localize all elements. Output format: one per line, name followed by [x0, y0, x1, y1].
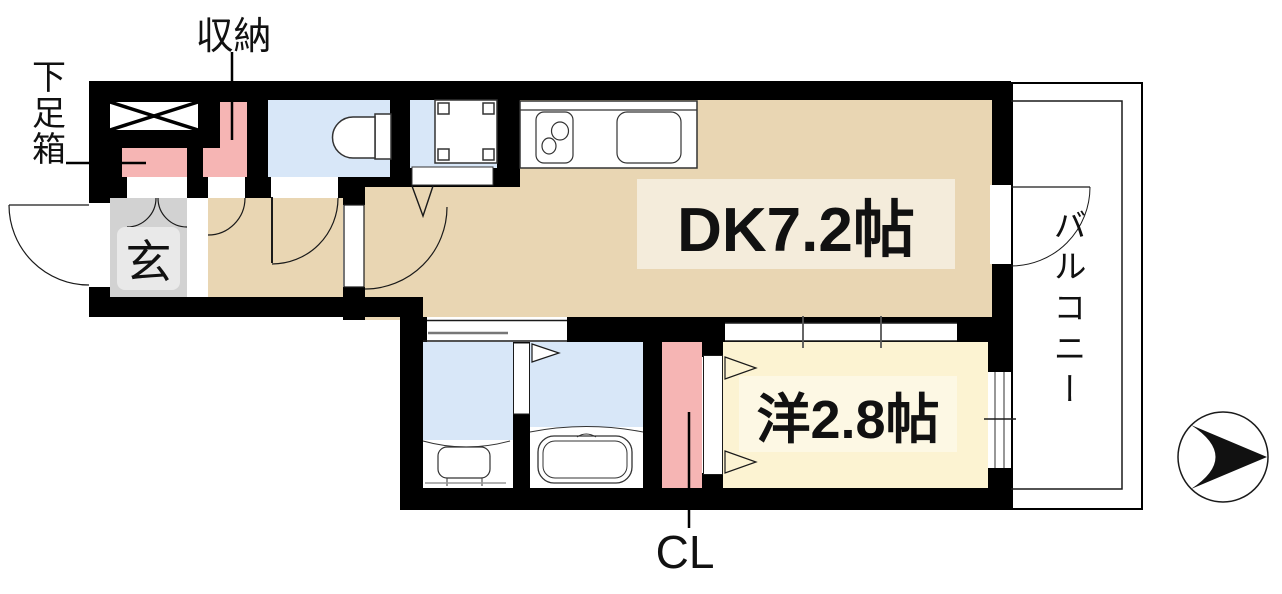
balcony-label: バルコニー [1046, 200, 1088, 420]
closet-label: CL [650, 528, 720, 576]
entrance-label: 玄 [117, 227, 180, 290]
doorway-opening [271, 177, 338, 198]
storage-label: 収納 [186, 10, 281, 54]
wall-segment [343, 287, 365, 320]
floor-plan: 収納 下足箱 玄 DK7.2帖 洋2.8帖 バルコニー CL [0, 0, 1282, 594]
wall-segment [643, 342, 662, 490]
wall-segment [89, 297, 423, 317]
north-arrow-icon [1178, 412, 1268, 502]
bathtub-area [530, 427, 643, 488]
dining-kitchen-label: DK7.2帖 [637, 179, 955, 269]
toilet-room-floor [268, 100, 390, 177]
laundry-area-floor [410, 100, 497, 168]
shoe-box-label: 下足箱 [24, 52, 68, 174]
wall-segment [702, 473, 723, 490]
doorway-opening [208, 177, 245, 198]
entrance-step [187, 198, 208, 295]
sliding-door-opening [427, 317, 567, 342]
window-opening [725, 323, 957, 341]
doorway-opening [127, 177, 187, 198]
wall-segment [400, 317, 423, 510]
closet-door [703, 355, 723, 475]
shoe-box [122, 148, 187, 177]
bathroom-floor [530, 342, 643, 427]
shoe-box-unit [110, 102, 198, 130]
wall-segment [513, 342, 530, 488]
balcony-window-opening [988, 372, 1011, 468]
washroom-floor [423, 342, 513, 440]
wall-segment [400, 488, 1011, 510]
balcony-doorway [990, 185, 1011, 264]
entrance-door-swing [9, 205, 89, 285]
wall-segment [89, 81, 110, 203]
wall-segment [89, 81, 1011, 100]
western-room-label: 洋2.8帖 [739, 376, 957, 452]
washroom-vanity-area [423, 440, 513, 488]
hallway-floor [208, 198, 343, 297]
storage-closet [203, 148, 247, 177]
entrance-doorway [89, 203, 110, 287]
wall-segment [343, 177, 365, 205]
closet-floor [662, 342, 702, 490]
